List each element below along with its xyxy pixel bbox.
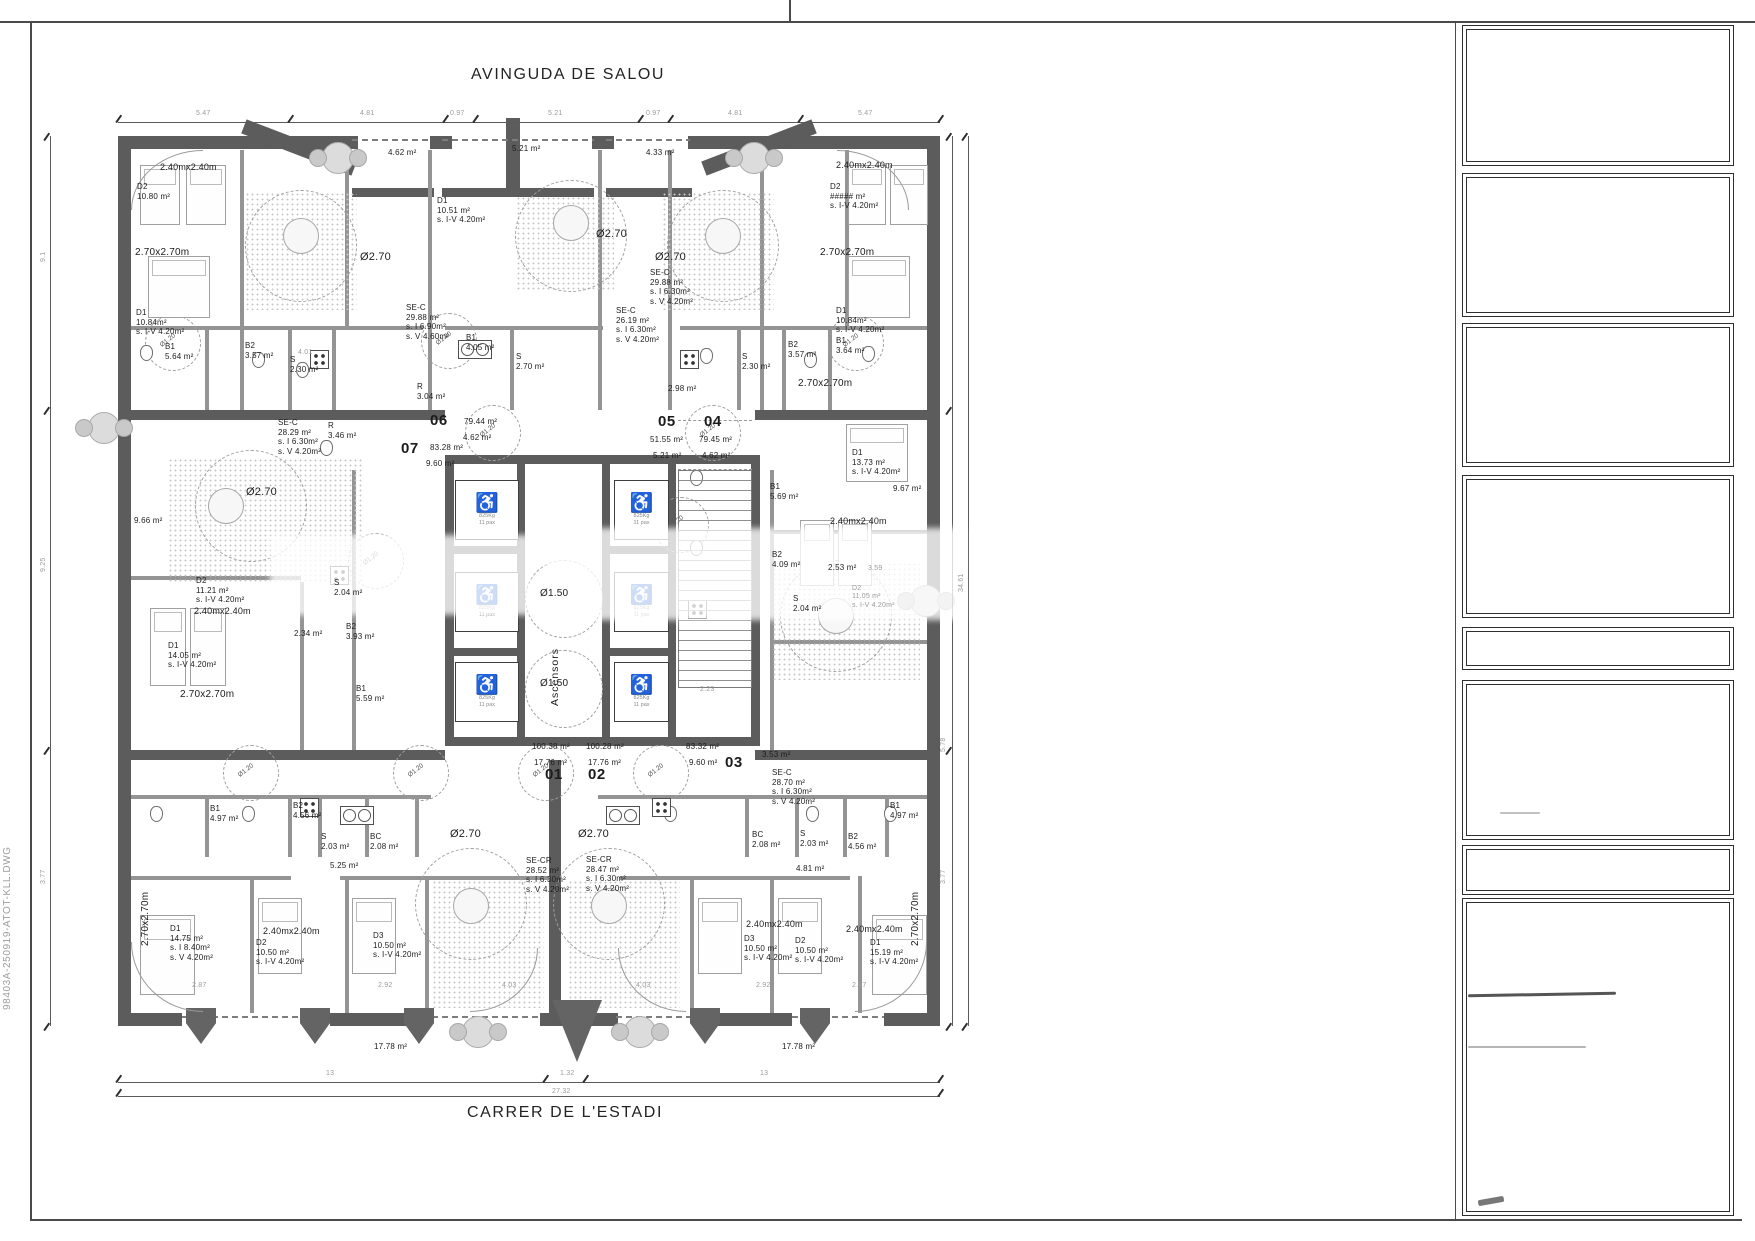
washer-dryer: [606, 806, 640, 825]
partition-wall: [332, 326, 336, 410]
plan-label: D1 10.84m² s. I-V 4.20m²: [136, 308, 184, 337]
plan-label: B2 4.09 m²: [772, 550, 801, 569]
plan-label: D2 11.05 m² s. I-V 4.20m²: [852, 585, 895, 610]
sheet-frame-line: [30, 21, 32, 1219]
titleblock-box: [1462, 898, 1734, 1216]
plan-label: 2.70x2.70m: [910, 892, 922, 946]
plan-label: 2.70x2.70m: [140, 892, 152, 946]
street-label-top: AVINGUDA DE SALOU: [471, 66, 665, 84]
plan-label: 4.03: [636, 982, 650, 990]
plan-label: 0.97: [450, 110, 464, 118]
wall: [118, 136, 131, 1026]
terrace-rail: [352, 139, 432, 141]
pencil-mark: [1468, 1046, 1586, 1048]
plan-label: 13: [326, 1070, 334, 1078]
plan-label: 2.70x2.70m: [180, 689, 234, 701]
plan-label: 2.40mx2.40m: [830, 516, 887, 527]
watermark: [545, 528, 965, 620]
plan-label: S 2.03 m²: [321, 832, 350, 851]
plan-label: 83.32 m²: [686, 742, 719, 752]
plan-label: S 2.30 m²: [290, 355, 319, 374]
dimension-tick: [945, 133, 951, 141]
plan-label: Ø2.70: [360, 251, 391, 264]
plan-label: D1 10.51 m² s. I-V 4.20m²: [437, 196, 485, 225]
plan-label: 5.25 m²: [330, 861, 359, 871]
terrace-table: [462, 1016, 494, 1048]
plan-label: 17.76 m²: [588, 758, 621, 768]
plan-label: 07: [401, 440, 419, 458]
plan-label: 17.78 m²: [374, 1042, 407, 1052]
entrance-arrow: [186, 1008, 216, 1044]
titleblock-box: [1462, 845, 1734, 895]
dimension-tick: [43, 407, 49, 415]
plan-label: D3 10.50 m² s. I-V 4.20m²: [373, 931, 421, 960]
titleblock-box: [1462, 323, 1734, 467]
plan-label: S 2.30 m²: [742, 352, 771, 371]
dimension-tick: [43, 1023, 49, 1031]
sheet-frame-line: [0, 21, 1755, 23]
plan-label: D1 14.05 m² s. I-V 4.20m²: [168, 641, 216, 670]
plan-label: 2.40mx2.40m: [263, 926, 320, 937]
plan-label: B1 4.97 m²: [210, 804, 239, 823]
plan-label: 2.87: [852, 982, 866, 990]
partition-wall: [250, 876, 254, 1013]
wall: [118, 1013, 182, 1026]
plan-label: 5.47: [196, 110, 210, 118]
plan-label: R 3.46 m²: [328, 421, 357, 440]
plan-label: SE-C 29.88 m² s. I 6.30m² s. V 4.20m²: [650, 268, 693, 306]
plan-label: 2.87: [192, 982, 206, 990]
partition-wall: [131, 795, 431, 799]
terrace-rail: [606, 139, 690, 141]
sheet-frame-line: [789, 0, 791, 21]
bathroom-fixture: [806, 806, 819, 822]
plan-label: 5.47: [858, 110, 872, 118]
plan-label: 2.70x2.70m: [798, 378, 852, 390]
plan-label: 2.70x2.70m: [820, 247, 874, 259]
partition-wall: [345, 876, 349, 1013]
entrance-arrow: [404, 1008, 434, 1044]
plan-label: 9.25: [40, 558, 48, 572]
plan-label: 2.53 m²: [828, 563, 857, 573]
plan-label: 4.81 m²: [796, 864, 825, 874]
table: [283, 218, 319, 254]
plan-label: B1 4.97 m²: [890, 801, 919, 820]
plan-label: B1 4.05 m²: [466, 333, 495, 352]
plan-label: 2.34 m²: [294, 629, 323, 639]
stove-burners: [680, 350, 699, 369]
dimension-tick: [945, 407, 951, 415]
plan-label: Ø2.70: [578, 828, 609, 841]
titleblock-box: [1462, 25, 1734, 166]
bathroom-fixture: [150, 806, 163, 822]
terrace-table: [624, 1016, 656, 1048]
bathroom-fixture: [242, 806, 255, 822]
plan-label: 0.97: [646, 110, 660, 118]
wall: [430, 136, 452, 149]
plan-label: 51.55 m²: [650, 435, 683, 445]
partition-wall: [428, 150, 432, 410]
wheelchair-icon: ♿: [630, 494, 654, 513]
plan-label: B1 3.64 m²: [836, 336, 865, 355]
elevator-cabin: ♿825Kg 11 pax: [614, 662, 669, 722]
plan-label: 06: [430, 412, 448, 430]
plan-label: 2.92: [378, 982, 392, 990]
plan-label: 4.81: [360, 110, 374, 118]
terrace-table: [738, 142, 770, 174]
plan-label: 2.40mx2.40m: [836, 160, 893, 171]
plan-label: 9.66 m²: [134, 516, 163, 526]
plan-label: Ø2.70: [450, 828, 481, 841]
dimension-line: [50, 136, 51, 1026]
plan-label: 83.28 m²: [430, 443, 463, 453]
bed: [698, 898, 742, 974]
dimension-line: [968, 136, 969, 1026]
dimension-tick: [945, 1023, 951, 1031]
cabin-capacity-label: 825Kg 11 pax: [633, 513, 649, 526]
plan-label: 4.81: [728, 110, 742, 118]
plan-label: 4.62 m²: [388, 148, 417, 158]
plan-label: D3 10.50 m² s. I-V 4.20m²: [744, 934, 792, 963]
plan-label: 100.38 m²: [532, 742, 570, 752]
dimension-line: [118, 122, 940, 123]
partition-wall: [680, 326, 927, 330]
plan-label: D1 13.73 m² s. I-V 4.20m²: [852, 448, 900, 477]
plan-label: 4.01: [298, 349, 312, 357]
cabin-capacity-label: 825Kg 11 pax: [479, 695, 495, 708]
bathroom-fixture: [140, 345, 153, 361]
plan-label: B2 3.57 m²: [788, 340, 817, 359]
partition-wall: [745, 795, 749, 857]
plan-label: R 3.04 m²: [417, 382, 446, 401]
dimension-tick: [961, 133, 967, 141]
partition-wall: [737, 326, 741, 410]
entrance-arrow: [800, 1008, 830, 1044]
partition-wall: [205, 795, 209, 857]
plan-label: D1 14.75 m² s. I 8.40m² s. V 4.20m²: [170, 924, 213, 962]
plan-label: Ø2.70: [246, 486, 277, 499]
titleblock-box: [1462, 173, 1734, 317]
pencil-mark: [1500, 812, 1540, 814]
watermark: [270, 535, 530, 615]
table: [208, 488, 244, 524]
plan-label: 3.77: [40, 870, 48, 884]
wall: [884, 1013, 940, 1026]
plan-label: SE-C 28.70 m² s. I 6.30m² s. V 4.20m²: [772, 768, 815, 806]
wheelchair-icon: ♿: [475, 494, 499, 513]
plan-label: S 2.70 m²: [516, 352, 545, 371]
plan-label: D1 10.84m² s. I-V 4.20m²: [836, 306, 884, 335]
table: [553, 205, 589, 241]
plan-label: 2.23: [700, 686, 714, 694]
plan-label: SE-C 28.29 m² s. I 6.30m² s. V 4.20m²: [278, 418, 321, 456]
partition-wall: [205, 326, 209, 410]
plan-label: D2 10.80 m²: [137, 182, 170, 201]
plan-label: 5.21 m²: [512, 144, 541, 154]
plan-label: 1.32: [560, 1070, 574, 1078]
cabin-capacity-label: 825Kg 11 pax: [633, 695, 649, 708]
plan-label: B1 5.59 m²: [356, 684, 385, 703]
plan-label: 79.45 m²: [699, 435, 732, 445]
dimension-tick: [43, 133, 49, 141]
dimension-tick: [937, 1089, 943, 1097]
plan-label: 2.40mx2.40m: [846, 924, 903, 935]
partition-wall: [288, 795, 292, 857]
plan-label: S 2.04 m²: [793, 594, 822, 613]
partition-wall: [782, 326, 786, 410]
plan-label: 2.40mx2.40m: [746, 919, 803, 930]
plan-label: BC 2.08 m²: [370, 832, 399, 851]
bathroom-fixture: [700, 348, 713, 364]
plan-label: 9.60 m²: [689, 758, 718, 768]
plan-label: 02: [588, 766, 606, 784]
table: [705, 218, 741, 254]
plan-label: B2 3.93 m²: [346, 622, 375, 641]
plan-label: BC 2.08 m²: [752, 830, 781, 849]
plan-label: 5.21 m²: [653, 451, 682, 461]
plan-label: B2 4.56 m²: [293, 801, 322, 820]
plan-label: Ø2.70: [655, 251, 686, 264]
wall: [352, 188, 434, 197]
plan-label: Ø2.70: [596, 228, 627, 241]
wheelchair-icon: ♿: [475, 676, 499, 695]
wall: [506, 118, 520, 194]
plan-label: 4.03: [502, 982, 516, 990]
wall: [610, 648, 670, 656]
plan-label: 5.21: [548, 110, 562, 118]
sheet-frame-line: [1455, 21, 1456, 1219]
dimension-tick: [937, 1075, 943, 1083]
wheelchair-icon: ♿: [630, 676, 654, 695]
dimension-tick: [43, 747, 49, 755]
plan-label: 3.77: [940, 870, 948, 884]
plan-label: 04: [704, 413, 722, 431]
dimension-tick: [961, 1023, 967, 1031]
plan-label: SE-CR 28.47 m² s. I 6.30m² s. V 4.20m²: [586, 855, 629, 893]
partition-wall: [131, 876, 291, 880]
turning-circle: [393, 745, 449, 801]
titleblock-box: [1462, 627, 1734, 670]
entrance-arrow: [690, 1008, 720, 1044]
wall: [755, 410, 927, 420]
plan-label: SE-CR 28.52 m² s. I 6.30m² s. V 4.20m²: [526, 856, 569, 894]
partition-wall: [690, 876, 694, 1013]
plan-label: 5.78: [940, 738, 948, 752]
plan-label: D2 ##### m² s. I-V 4.20m²: [830, 182, 878, 211]
plan-label: 2.70x2.70m: [135, 247, 189, 259]
plan-label: 2.92: [756, 982, 770, 990]
plan-label: 79.44 m²: [464, 417, 497, 427]
sheet-frame-line: [30, 1219, 1742, 1221]
wall: [453, 648, 519, 656]
terrace-rail: [442, 139, 594, 141]
plan-label: 27.32: [552, 1088, 571, 1096]
plan-label: B1 5.64 m²: [165, 342, 194, 361]
cabin-capacity-label: 825Kg 11 pax: [479, 513, 495, 526]
stove-burners: [652, 798, 671, 817]
bathroom-fixture: [320, 440, 333, 456]
washer-dryer: [340, 806, 374, 825]
plan-label: D2 10.50 m² s. I-V 4.20m²: [795, 936, 843, 965]
partition-wall: [365, 795, 369, 857]
plan-label: D2 10.50 m² s. I-V 4.20m²: [256, 938, 304, 967]
partition-wall: [415, 795, 419, 857]
plan-label: 100.28 m²: [586, 742, 624, 752]
partition-wall: [885, 795, 889, 857]
plan-label: 05: [658, 413, 676, 431]
plan-label: 9.60 m²: [426, 459, 455, 469]
plan-label: 2.40mx2.40m: [160, 162, 217, 173]
table: [453, 888, 489, 924]
plan-label: 3.53 m²: [762, 750, 791, 760]
plan-label: 17.78 m²: [782, 1042, 815, 1052]
plan-label: 17.76 m²: [534, 758, 567, 768]
table: [591, 888, 627, 924]
plan-label: SE-C 29.88 m² s. I 6.90m² s. V 4.60m²: [406, 303, 449, 341]
titleblock-box: [1462, 475, 1734, 618]
plan-label: S 2.03 m²: [800, 829, 829, 848]
partition-wall: [510, 326, 514, 410]
dimension-line: [118, 1082, 940, 1083]
terrace-rail: [616, 1016, 700, 1018]
plan-label: B1 5.69 m²: [770, 482, 799, 501]
plan-label: B2 4.56 m²: [848, 832, 877, 851]
plan-label: 3.59: [868, 565, 882, 573]
plan-label: SE-C 26.19 m² s. I 6.30m² s. V 4.20m²: [616, 306, 659, 344]
plan-label: 2.40mx2.40m: [194, 606, 251, 617]
plan-label: 9.67 m²: [893, 484, 922, 494]
terrace-table: [322, 142, 354, 174]
plan-label: B2 3.57 m²: [245, 341, 274, 360]
plan-label: S 2.04 m²: [334, 578, 363, 597]
turning-circle: [223, 745, 279, 801]
plan-label: 4.62 m²: [463, 433, 492, 443]
plan-label: 4.33 m²: [646, 148, 675, 158]
main-entrance-arrow: [552, 1000, 602, 1062]
wall: [688, 136, 940, 149]
plan-label: 4.62 m²: [702, 451, 731, 461]
dimension-tick: [937, 115, 943, 123]
plan-label: 9.1: [40, 252, 48, 262]
plan-label: D2 11.21 m² s. I-V 4.20m²: [196, 576, 244, 605]
titleblock-box: [1462, 680, 1734, 840]
wall: [118, 136, 358, 149]
dimension-line: [118, 1096, 940, 1097]
plan-label: 2.98 m²: [668, 384, 697, 394]
elevator-core-label: Ascensors: [549, 594, 561, 706]
partition-wall: [843, 795, 847, 857]
cad-sheet: { "streets": { "top": "AVINGUDA DE SALOU…: [0, 0, 1755, 1241]
plan-label: 01: [545, 766, 563, 784]
turning-circle: [633, 745, 689, 801]
entrance-arrow: [300, 1008, 330, 1044]
elevator-cabin: ♿825Kg 11 pax: [455, 480, 519, 540]
terrace-table: [88, 412, 120, 444]
wall: [592, 136, 614, 149]
plan-label: 34.61: [958, 573, 966, 592]
drawing-filename: 98403A-250919-ATOT-KLL.DWG: [2, 690, 13, 1010]
plan-label: 13: [760, 1070, 768, 1078]
plan-label: 03: [725, 754, 743, 772]
elevator-cabin: ♿825Kg 11 pax: [455, 662, 519, 722]
street-label-bottom: CARRER DE L'ESTADI: [467, 1104, 663, 1122]
partition-wall: [240, 150, 244, 410]
